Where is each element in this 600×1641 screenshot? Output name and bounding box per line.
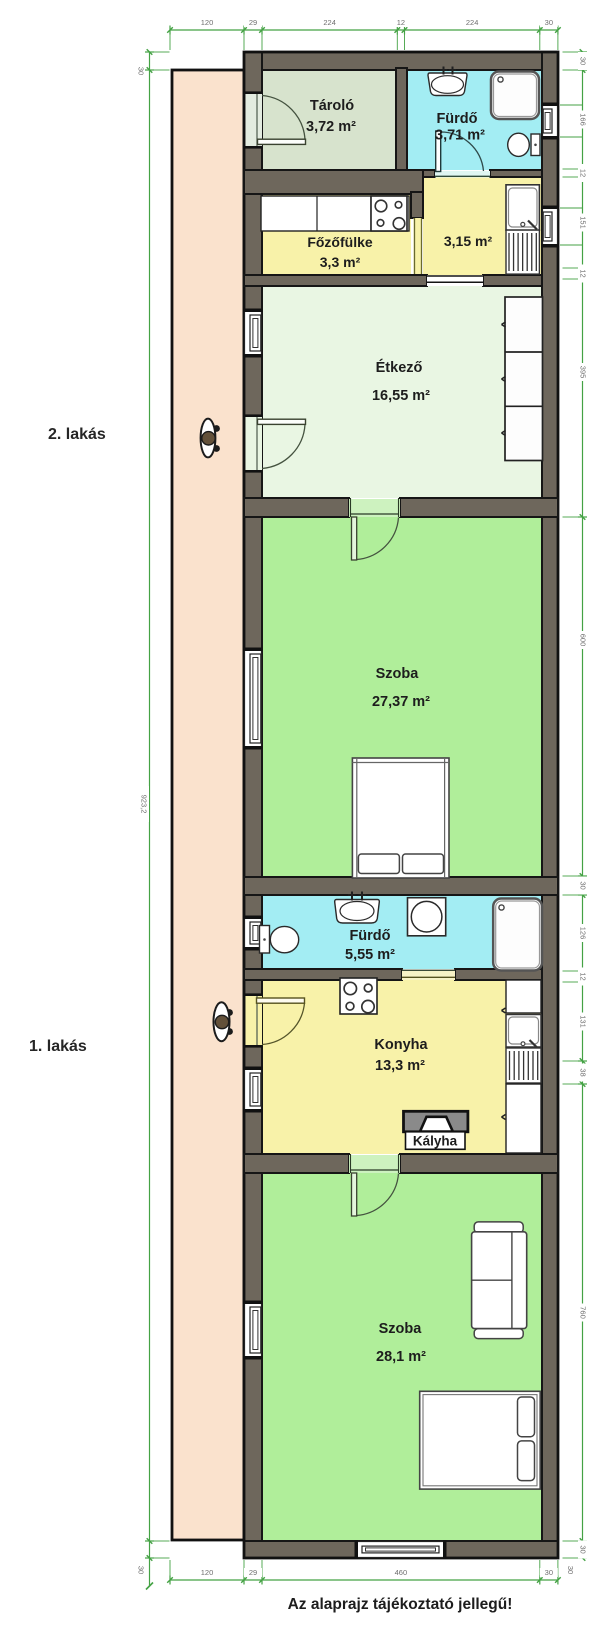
svg-text:224: 224: [466, 18, 479, 27]
svg-text:126: 126: [579, 927, 588, 940]
svg-text:Fürdő: Fürdő: [436, 111, 477, 127]
svg-text:30: 30: [579, 1545, 588, 1553]
svg-text:166: 166: [579, 113, 588, 126]
svg-text:12: 12: [397, 18, 405, 27]
svg-text:30: 30: [545, 1568, 553, 1577]
svg-text:30: 30: [579, 57, 588, 65]
svg-text:3,15 m²: 3,15 m²: [444, 233, 493, 249]
svg-text:16,55 m²: 16,55 m²: [372, 388, 430, 404]
svg-text:30: 30: [566, 1566, 575, 1574]
svg-text:38: 38: [579, 1068, 588, 1076]
svg-text:120: 120: [201, 1568, 214, 1577]
svg-text:460: 460: [395, 1568, 408, 1577]
svg-text:Az alaprajz tájékoztató jelleg: Az alaprajz tájékoztató jellegű!: [288, 1596, 513, 1613]
svg-text:Étkező: Étkező: [376, 359, 423, 376]
svg-text:30: 30: [545, 18, 553, 27]
svg-text:Kályha: Kályha: [413, 1134, 458, 1149]
svg-text:Konyha: Konyha: [374, 1037, 428, 1053]
svg-text:224: 224: [323, 18, 336, 27]
svg-text:3,72 m²: 3,72 m²: [306, 119, 356, 135]
svg-text:600: 600: [579, 634, 588, 647]
svg-text:760: 760: [579, 1306, 588, 1319]
svg-text:30: 30: [579, 881, 588, 889]
svg-text:30: 30: [137, 67, 146, 75]
svg-text:131: 131: [579, 1015, 588, 1028]
svg-text:28,1 m²: 28,1 m²: [376, 1349, 426, 1365]
svg-text:13,3 m²: 13,3 m²: [375, 1058, 425, 1074]
svg-text:3,71 m²: 3,71 m²: [435, 128, 485, 144]
svg-text:12: 12: [579, 269, 588, 277]
svg-text:29: 29: [249, 1568, 257, 1577]
svg-text:3,3 m²: 3,3 m²: [320, 254, 361, 270]
svg-text:1. lakás: 1. lakás: [29, 1038, 87, 1055]
svg-text:Szoba: Szoba: [379, 1321, 423, 1337]
svg-text:923,2: 923,2: [140, 795, 149, 814]
svg-text:Főzőfülke: Főzőfülke: [307, 234, 373, 250]
svg-text:29: 29: [249, 18, 257, 27]
svg-text:5,55 m²: 5,55 m²: [345, 947, 395, 963]
svg-text:2. lakás: 2. lakás: [48, 426, 106, 443]
svg-text:151: 151: [579, 216, 588, 229]
svg-text:12: 12: [579, 972, 588, 980]
svg-text:Szoba: Szoba: [376, 666, 420, 682]
svg-text:395: 395: [579, 366, 588, 379]
svg-text:27,37 m²: 27,37 m²: [372, 694, 430, 710]
svg-text:120: 120: [201, 18, 214, 27]
svg-text:Fürdő: Fürdő: [349, 928, 390, 944]
svg-text:12: 12: [579, 169, 588, 177]
svg-text:Tároló: Tároló: [310, 98, 354, 114]
svg-text:30: 30: [137, 1566, 146, 1574]
